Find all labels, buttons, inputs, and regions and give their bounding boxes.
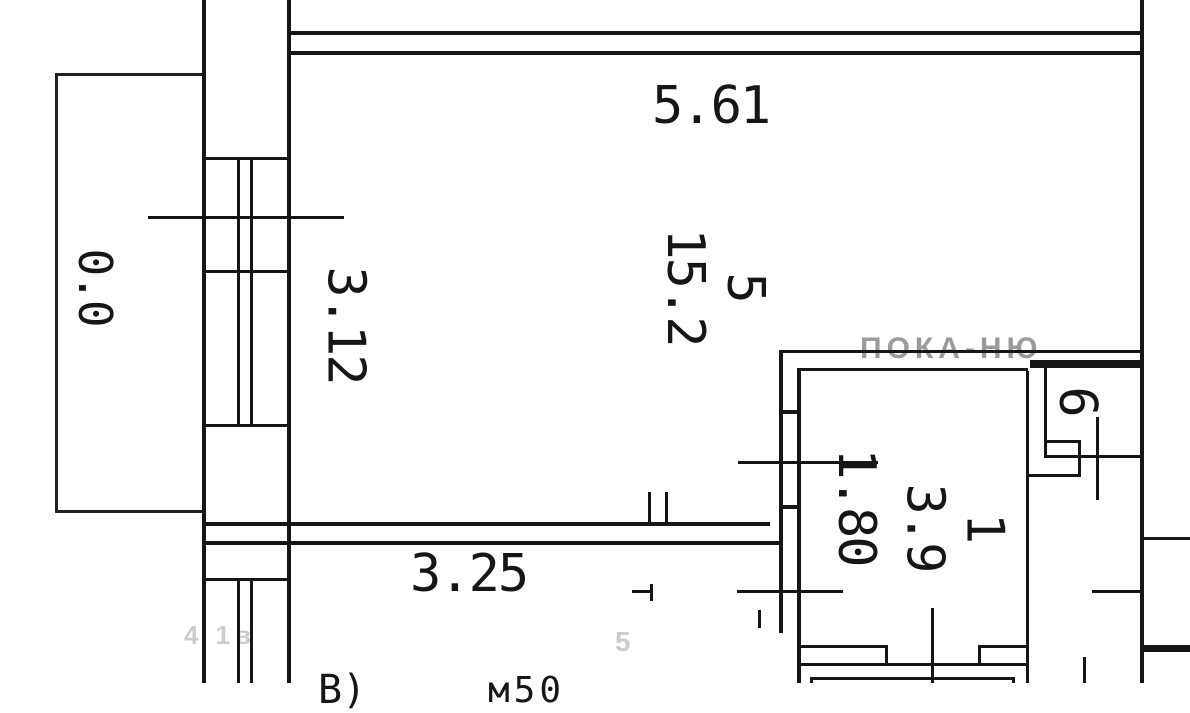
wall-bath-bottom-inner xyxy=(797,663,1028,666)
window-glazing-line xyxy=(237,580,240,683)
closet-label-leader-line xyxy=(1096,417,1099,500)
window-sill xyxy=(202,157,291,160)
edge-text-fragment: м50 xyxy=(488,673,565,709)
wall-closet-bottom xyxy=(1044,455,1140,458)
watermark-fragment: 5 xyxy=(615,626,636,658)
dimension-bath-width: 1.80 xyxy=(830,447,882,567)
dimension-tick xyxy=(758,610,761,628)
door-jamb xyxy=(665,492,668,523)
window-glazing-line xyxy=(250,580,253,683)
dimension-top-width: 5.61 xyxy=(652,80,769,132)
wall-stub-right xyxy=(1144,645,1190,652)
watermark-fragment: 4 1в xyxy=(184,620,256,651)
wall-corner-step xyxy=(1078,440,1081,477)
window-sill xyxy=(202,270,291,273)
dimension-line xyxy=(737,590,843,593)
balcony-wall-bottom xyxy=(55,510,206,513)
closet-number-label: 6 xyxy=(1051,376,1103,426)
wall-stub-right xyxy=(1144,537,1190,540)
watermark-text: ПОКА-НЮ xyxy=(860,332,1042,366)
door-leaf-line xyxy=(931,608,934,683)
bath-room-number: 1 xyxy=(959,513,1011,542)
window-glazing-line xyxy=(250,157,253,425)
living-room-label: 5 15.2 xyxy=(661,217,771,357)
wall-bath-left-inner xyxy=(797,368,801,683)
wall-bath-bottom xyxy=(797,645,888,648)
wall-right xyxy=(1140,0,1144,683)
bathtub-outline xyxy=(810,677,1015,680)
wall-stub xyxy=(1083,657,1086,683)
door-jamb xyxy=(885,645,888,666)
dimension-tick xyxy=(650,584,653,601)
wall-top-inner xyxy=(291,51,1144,55)
dimension-left-wall: 3.12 xyxy=(320,258,372,393)
door-jamb xyxy=(978,645,981,666)
wall-bath-top-inner xyxy=(797,368,1028,371)
wall-bath-right xyxy=(1026,371,1029,683)
balcony-area-label: 0.0 xyxy=(72,232,118,342)
bath-room-label: 1 3.9 xyxy=(906,463,1011,593)
balcony-wall-top xyxy=(55,73,206,76)
wall-top-outer xyxy=(291,31,1144,35)
floor-plan-page: { "plan": { "dimensions": { "top_width":… xyxy=(0,0,1190,683)
living-room-area: 15.2 xyxy=(659,228,711,345)
wall-bath-top-outer xyxy=(779,350,1140,353)
wall-corner-step xyxy=(1044,440,1081,443)
window-sill xyxy=(202,578,291,581)
wall-closet-top xyxy=(1030,360,1140,368)
wall-corner-step xyxy=(1026,474,1081,477)
bath-room-area: 3.9 xyxy=(899,484,951,572)
dimension-line xyxy=(1092,590,1140,593)
wall-bath-bottom xyxy=(978,645,1028,648)
balcony-wall-left xyxy=(55,73,58,513)
dimension-bottom-width: 3.25 xyxy=(410,548,527,600)
edge-text-fragment: В) xyxy=(318,670,366,710)
door-jamb xyxy=(779,410,801,414)
window-glazing-line xyxy=(237,157,240,425)
door-jamb xyxy=(648,492,651,523)
bathtub-outline xyxy=(1012,677,1015,683)
bathtub-outline xyxy=(810,677,813,683)
door-jamb xyxy=(779,505,801,509)
dimension-line-left xyxy=(148,216,344,219)
window-sill xyxy=(202,424,291,427)
living-room-number: 5 xyxy=(719,272,771,301)
wall-living-bottom-outer xyxy=(206,522,770,526)
